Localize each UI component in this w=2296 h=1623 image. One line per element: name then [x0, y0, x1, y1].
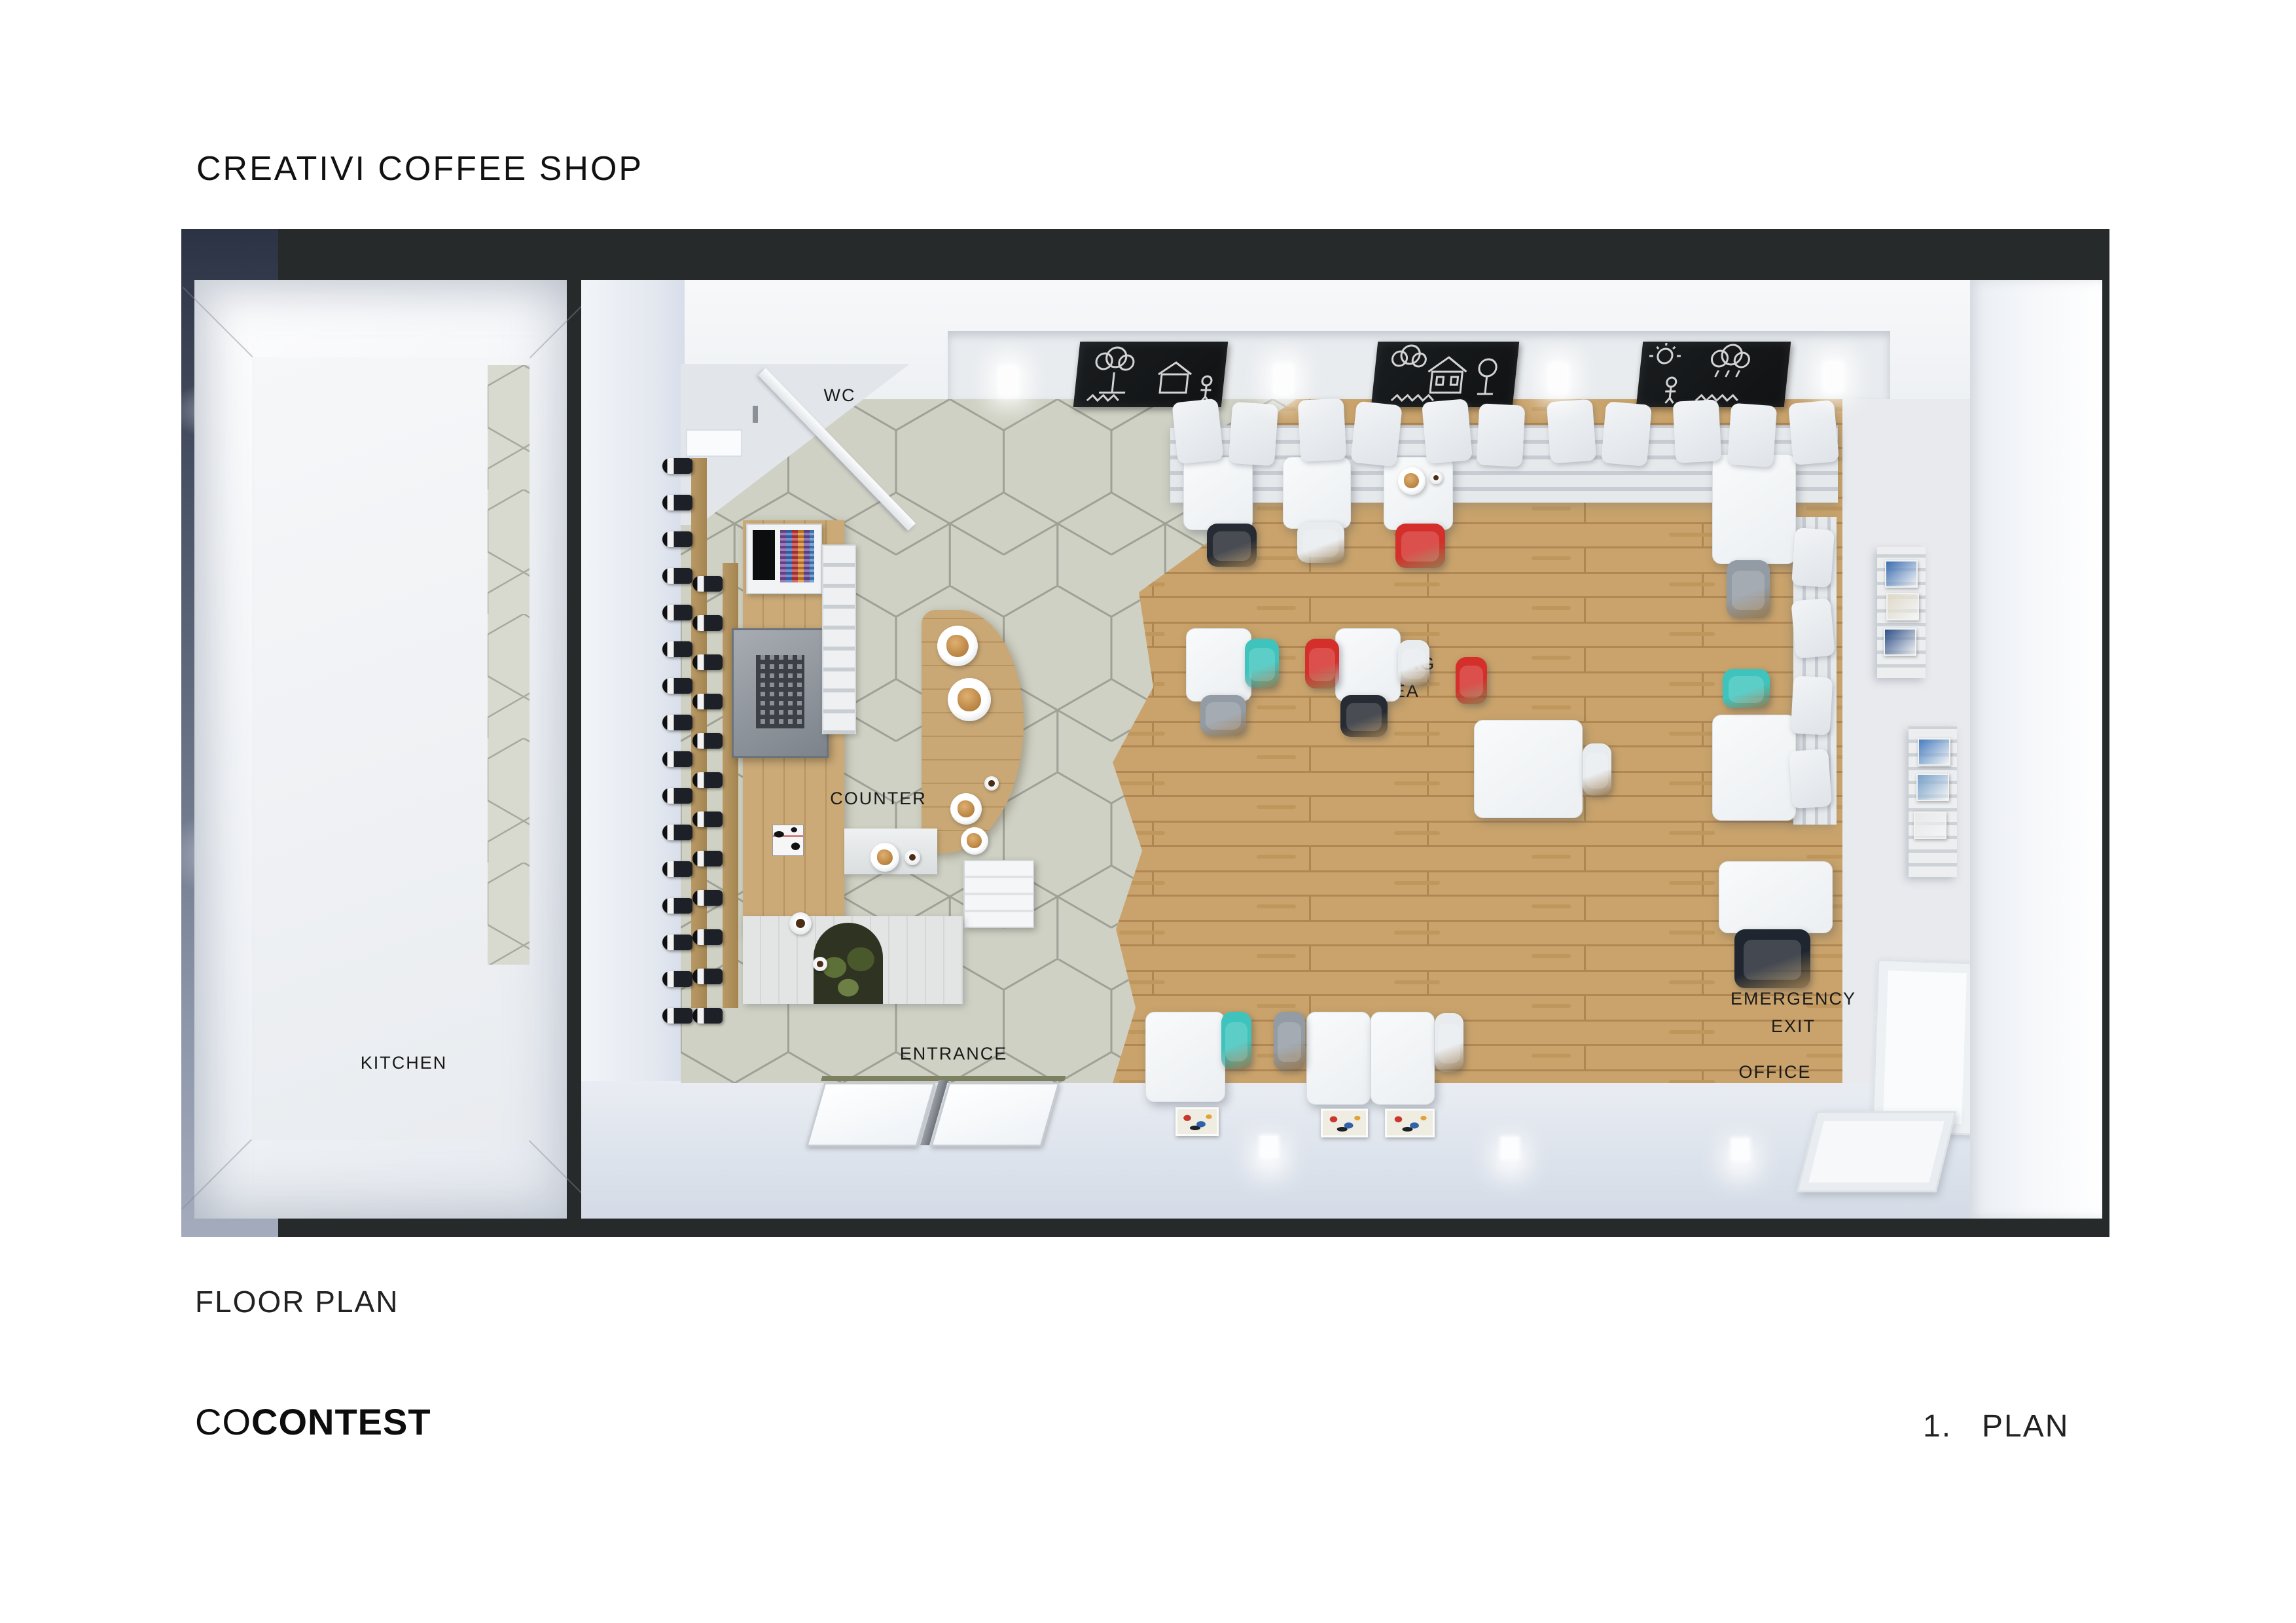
emergency-exit-door [1871, 959, 1978, 1135]
presentation-board: CREATIVI COFFEE SHOP [0, 0, 2296, 1623]
page-index: 1.PLAN [1923, 1408, 2069, 1444]
brand-logo: COCONTEST [195, 1400, 431, 1443]
wall-cabinet [686, 429, 742, 457]
coffee-grinder-machine [732, 628, 829, 758]
espresso-machine [746, 524, 822, 594]
entrance-label: ENTRANCE [900, 1041, 1008, 1068]
office-label: OFFICE [1739, 1059, 1812, 1086]
chalkboard-panel [1636, 342, 1791, 407]
office-door [1797, 1111, 1957, 1192]
kitchen-hex-strip [488, 365, 529, 965]
render-frame: KITCHEN [181, 229, 2109, 1237]
counter-label: COUNTER [830, 785, 927, 813]
espresso-screen [753, 530, 775, 580]
kitchen-label: KITCHEN [361, 1050, 448, 1077]
glass-pane-left [806, 1082, 935, 1147]
grinder-vent [756, 655, 804, 728]
kitchen-room: KITCHEN [194, 280, 567, 1219]
page-title: CREATIVI COFFEE SHOP [196, 149, 643, 188]
seating-area-label: SEATINGAREA [1350, 651, 1436, 705]
capsule-display [780, 530, 814, 582]
cash-register [963, 860, 1034, 928]
wc-door-handle [753, 406, 758, 423]
entrance-door [806, 1080, 1060, 1147]
left-wall [581, 280, 685, 1219]
wc-label: WC [824, 382, 856, 410]
emergency-exit-label: EMERGENCYEXIT [1731, 986, 1856, 1041]
chalkboard-panel [1371, 342, 1520, 407]
magazine-rack-lower [1909, 726, 1957, 877]
right-wall [1970, 280, 2102, 1219]
coffee-shop-room: WC COUNTER SEATINGAREA ENTRANCE EMERGENC… [581, 280, 2102, 1219]
service-counter [844, 829, 937, 874]
cup-shelf [822, 544, 856, 734]
pallet-bench-top [1170, 425, 1838, 503]
magazine-rack-upper [1877, 547, 1926, 678]
plant-niche [814, 923, 883, 1004]
pallet-bench-right [1793, 517, 1837, 825]
arch-counter-front [743, 916, 963, 1004]
chalkboard-panel [1073, 342, 1229, 407]
floor-plan-caption: FLOOR PLAN [195, 1284, 399, 1319]
wine-rack-rail [691, 458, 707, 1008]
glass-pane-right [930, 1082, 1060, 1147]
cow-print-stool [772, 825, 804, 856]
